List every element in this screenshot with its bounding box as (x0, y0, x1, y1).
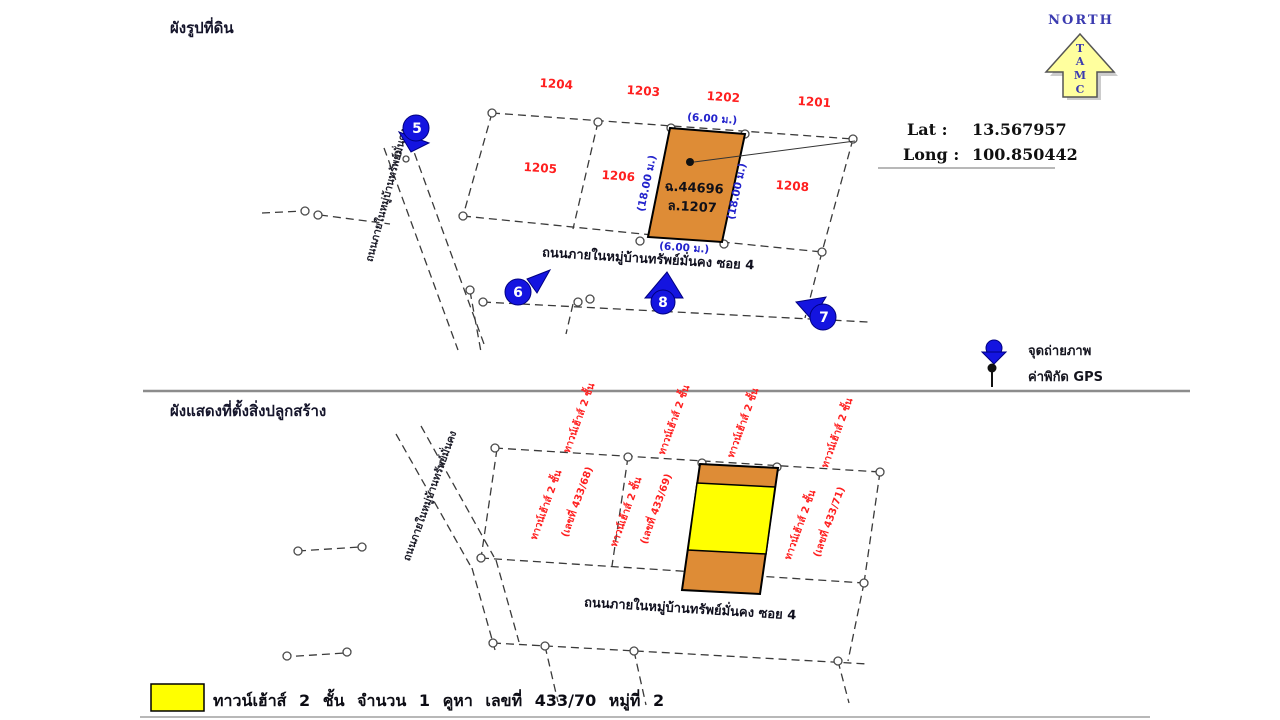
survey-node (479, 298, 487, 306)
site-plan-drawing: ผังรูปที่ดิน NORTH T A M C Lat : 13.5679… (0, 0, 1280, 720)
survey-node (477, 554, 485, 562)
survey-node (314, 211, 322, 219)
photo-marker-number: 6 (513, 285, 523, 301)
parcel-divider-dashed-line (822, 139, 853, 252)
photo-point-markers: 5 6 8 7 (399, 115, 836, 330)
survey-node (343, 648, 351, 656)
road-edge-dashed-line (838, 661, 849, 703)
survey-node (630, 647, 638, 655)
south-boundary-dashed-line (481, 558, 864, 583)
building-location-plan: ผังแสดงที่ตั้งสิ่งปลูกสร้าง (140, 381, 1150, 717)
legend-building-text: ทาวน์เฮ้าส์ 2 ชั้น จำนวน 1 คูหา เลขที่ 4… (213, 688, 664, 712)
parcel-number-1204: 1204 (539, 76, 573, 92)
survey-node (876, 468, 884, 476)
photo-marker-8: 8 (645, 272, 683, 314)
townhouse-label: ทาวน์เฮ้าส์ 2 ชั้น (817, 396, 855, 470)
building-legend: ทาวน์เฮ้าส์ 2 ชั้น จำนวน 1 คูหา เลขที่ 4… (151, 684, 664, 712)
subject-building (682, 464, 778, 594)
parcel-number-1201: 1201 (797, 94, 831, 110)
legend-gps-label: ค่าพิกัด GPS (1028, 370, 1103, 385)
photo-point-icon-wedge (982, 352, 1006, 364)
north-letter-m: M (1074, 69, 1086, 82)
long-value: 100.850442 (972, 145, 1078, 164)
parcel-divider-dashed-line (864, 472, 880, 583)
south-boundary-dashed-line (463, 216, 822, 252)
cadastral-boundaries (262, 113, 868, 352)
survey-node (283, 652, 291, 660)
survey-node (636, 237, 644, 245)
north-arrow: NORTH T A M C (1046, 13, 1118, 100)
gps-point-dot (686, 158, 694, 166)
parcel-number-1206: 1206 (601, 168, 635, 184)
townhouse-label: ทาวน์เฮ้าส์ 2 ชั้น (654, 383, 692, 457)
photo-marker-number: 7 (819, 310, 829, 326)
land-plot-plan: ผังรูปที่ดิน NORTH T A M C Lat : 13.5679… (143, 13, 1190, 391)
road-edge-dashed-line (410, 141, 484, 344)
survey-node (488, 109, 496, 117)
gps-coordinates: Lat : 13.567957 Long : 100.850442 (878, 120, 1078, 168)
north-letter-t: T (1076, 42, 1085, 55)
survey-document-page: ผังรูปที่ดิน NORTH T A M C Lat : 13.5679… (0, 0, 1280, 720)
road-edge-dashed-line (566, 304, 573, 334)
survey-node (466, 286, 474, 294)
long-label: Long : (903, 145, 959, 164)
parcel-number-1203: 1203 (626, 83, 660, 99)
survey-node (574, 298, 582, 306)
survey-node (459, 212, 467, 220)
unit-name: ทาวน์เฮ้าส์ 2 ชั้น (526, 468, 564, 542)
road-edge-dashed-line (472, 568, 495, 650)
boundary-dashed-line (298, 547, 360, 551)
survey-node (294, 547, 302, 555)
boundary-dashed-line (283, 653, 345, 657)
unit-name: ทาวน์เฮ้าส์ 2 ชั้น (606, 475, 644, 549)
parcel-divider-dashed-line (463, 113, 492, 216)
road-name-horizontal: ถนนภายในหมู่บ้านทรัพย์มั่นคง ซอย 4 (584, 593, 797, 624)
legend-photo-label: จุดถ่ายภาพ (1028, 344, 1091, 359)
subject-townhouse-unit (688, 483, 775, 554)
survey-node (860, 579, 868, 587)
boundary-dashed-line (262, 211, 303, 213)
north-letter-c: C (1076, 83, 1085, 96)
deed-number: ฉ.44696 (664, 179, 724, 197)
building-plan-boundaries (283, 426, 880, 705)
lat-value: 13.567957 (972, 120, 1067, 139)
road-edge-dashed-line (496, 560, 519, 642)
parcel-divider-dashed-line (481, 449, 497, 558)
survey-node (301, 207, 309, 215)
photo-marker-number: 8 (658, 295, 668, 311)
survey-node (489, 639, 497, 647)
survey-node (541, 642, 549, 650)
photo-marker-number: 5 (412, 121, 422, 137)
survey-node (403, 156, 409, 162)
survey-node (586, 295, 594, 303)
parcel-divider-dashed-line (848, 583, 864, 661)
survey-node (594, 118, 602, 126)
road-name-vertical: ถนนภายในหมู่บ้านทรัพย์มั่นคง (361, 127, 412, 264)
lat-label: Lat : (907, 120, 947, 139)
building-plan-title: ผังแสดงที่ตั้งสิ่งปลูกสร้าง (170, 399, 326, 421)
parcel-number-1208: 1208 (775, 178, 809, 194)
survey-node (491, 444, 499, 452)
townhouse-label: ทาวน์เฮ้าส์ 2 ชั้น (723, 386, 761, 460)
survey-node (834, 657, 842, 665)
survey-node (818, 248, 826, 256)
survey-node (358, 543, 366, 551)
neighbour-unit-labels: ทาวน์เฮ้าส์ 2 ชั้น (เลขที่ 433/68) ทาวน์… (526, 464, 847, 561)
photo-marker-7: 7 (796, 297, 836, 330)
map-legend: จุดถ่ายภาพ ค่าพิกัด GPS (982, 340, 1103, 387)
photo-marker-6: 6 (505, 270, 550, 305)
north-label: NORTH (1048, 13, 1114, 28)
legend-yellow-swatch (151, 684, 204, 711)
parcel-divider-dashed-line (573, 122, 598, 229)
north-letter-a: A (1075, 55, 1085, 68)
parcel-number-1205: 1205 (523, 160, 557, 176)
parcel-number-subject: ล.1207 (667, 199, 717, 217)
townhouse-row-labels: ทาวน์เฮ้าส์ 2 ชั้น ทาวน์เฮ้าส์ 2 ชั้น ทา… (559, 381, 855, 470)
plot-width-top: (6.00 ม.) (687, 111, 738, 126)
survey-node (624, 453, 632, 461)
road-name-vertical: ถนนภายในหมู่บ้านทรัพย์มั่นคง (398, 428, 460, 563)
parcel-number-1202: 1202 (706, 89, 740, 105)
land-plan-title: ผังรูปที่ดิน (170, 17, 234, 38)
